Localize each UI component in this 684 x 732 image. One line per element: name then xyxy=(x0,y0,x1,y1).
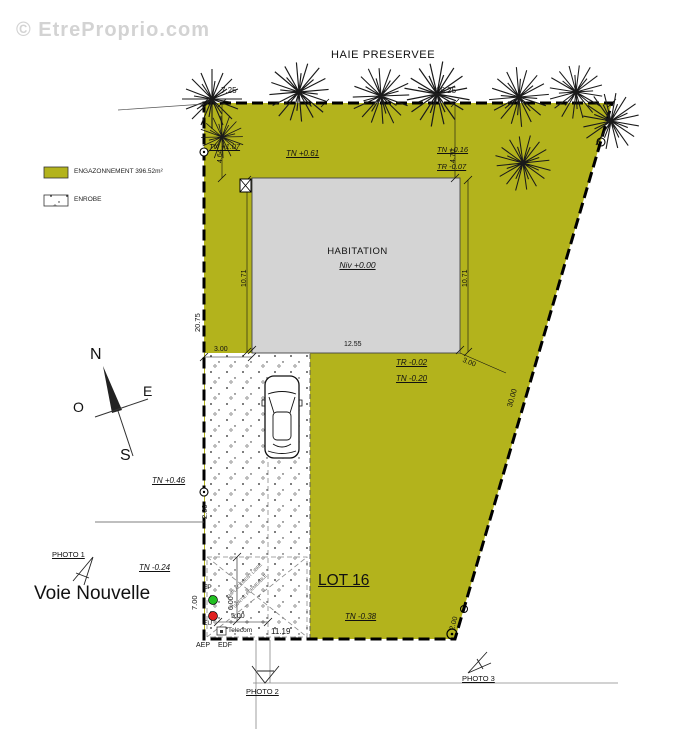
dim-frontage-bottom: 11.19 xyxy=(271,628,290,636)
utility-telecom-label: Telecom xyxy=(228,628,252,635)
ep-marker-dot xyxy=(209,596,218,605)
level-tr-minus-002: TR -0.02 xyxy=(396,359,427,367)
level-tn-plus-107: TN +1.07 xyxy=(209,143,240,151)
compass-west-label: O xyxy=(73,400,84,415)
dim-house-width: 12.55 xyxy=(344,341,362,348)
utility-aep-label: AEP xyxy=(196,642,210,649)
watermark: © EtreProprio.com xyxy=(16,20,210,41)
car-icon xyxy=(262,376,302,458)
utility-eu-label: EU xyxy=(203,621,212,628)
photo1-cone-icon xyxy=(73,557,93,585)
level-tn-minus-020: TN -0.20 xyxy=(396,375,427,383)
photo3-cone-icon xyxy=(468,652,491,673)
level-tn-minus-038: TN -0.38 xyxy=(345,613,376,621)
photo3-label: PHOTO 3 xyxy=(462,675,495,683)
dim-frontage-left: 7.00 xyxy=(191,595,199,610)
dim-drive-width: 5.00 xyxy=(231,613,245,620)
dim-house-side-left: 10.71 xyxy=(241,269,248,287)
level-tn-minus-024: TN -0.24 xyxy=(139,564,170,572)
site-plan-page: © EtreProprio.com HAIE PRESERVEE ENGAZON… xyxy=(0,0,684,732)
level-tr-minus-007: TR -0.07 xyxy=(437,163,466,171)
dim-top-right: 18.25 xyxy=(436,87,456,95)
utility-ep-label: EP xyxy=(203,585,212,592)
dim-setback-left: 4.64 xyxy=(217,149,224,163)
dim-gate-width: 2.00 xyxy=(201,504,209,519)
legend-label-engazonnement: ENGAZONNEMENT 396.52m² xyxy=(74,169,163,176)
photo2-label: PHOTO 2 xyxy=(246,688,279,696)
level-tn-plus-016: TN +0.16 xyxy=(437,146,468,154)
legend-swatches xyxy=(44,167,68,206)
dim-house-side-right: 10.71 xyxy=(462,269,469,287)
telecom-box-icon xyxy=(217,627,226,635)
compass-icon xyxy=(95,366,148,456)
street-name: Voie Nouvelle xyxy=(34,584,150,604)
dim-top-left: 7.25 xyxy=(221,87,237,95)
compass-south-label: S xyxy=(120,448,131,465)
dim-house-offset-left: 3.00 xyxy=(214,346,228,353)
level-tn-plus-061: TN +0.61 xyxy=(286,150,319,158)
site-plan-drawing xyxy=(0,0,684,732)
utility-edf-label: EDF xyxy=(218,642,232,649)
dim-left-boundary: 20.75 xyxy=(194,313,202,332)
house-label: HABITATION xyxy=(310,247,405,257)
level-tn-plus-046: TN +0.46 xyxy=(152,477,185,485)
legend-grass-swatch xyxy=(44,167,68,178)
house-level: Niv +0.00 xyxy=(310,261,405,270)
photo1-label: PHOTO 1 xyxy=(52,551,85,559)
hedge-title: HAIE PRESERVEE xyxy=(331,50,435,62)
xbox-marker-icon xyxy=(240,179,251,192)
compass-east-label: E xyxy=(143,384,152,399)
legend-label-enrobe: ENROBE xyxy=(74,197,101,204)
compass-north-label: N xyxy=(90,347,102,364)
lot-label: LOT 16 xyxy=(318,573,369,589)
